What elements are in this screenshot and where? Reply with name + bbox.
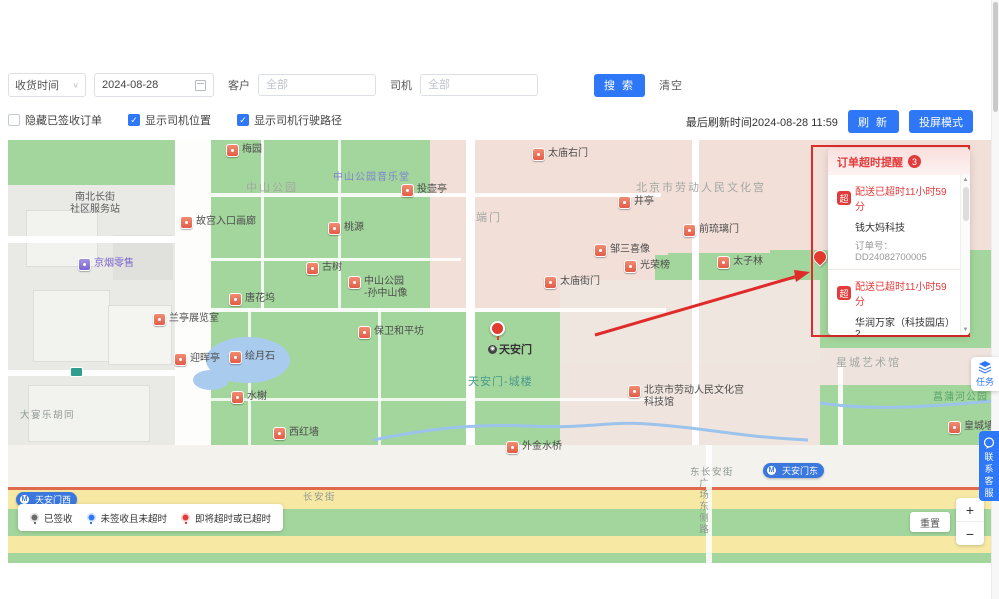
alert-panel-title: 订单超时提醒: [837, 154, 903, 170]
map-label-太子林[interactable]: 太子林: [717, 256, 763, 269]
map-label-绘月石[interactable]: 绘月石: [229, 351, 275, 364]
map-label-中山公园: 中山公园: [246, 182, 298, 194]
map-label-南北长街: 南北长街社区服务站: [70, 192, 120, 216]
map-label-text: 投壶亭: [417, 184, 447, 196]
poi-icon: [306, 262, 319, 275]
map-label-北京市劳动人民文化宫[interactable]: 北京市劳动人民文化宫科技馆: [628, 385, 744, 409]
date-picker[interactable]: 2024-08-28: [94, 73, 214, 97]
overtime-alert-panel: 订单超时提醒 3 超配送已超时11小时59分钱大妈科技订单号：DD2408270…: [828, 148, 970, 335]
map-label-poi: [70, 367, 86, 377]
poi-icon: [717, 256, 730, 269]
poi-icon: [231, 391, 244, 404]
legend-item: 未签收且未超时: [87, 511, 168, 525]
alert-order-no: 订单号：DD24082700005: [855, 238, 952, 263]
map-label-text: 梅园: [242, 144, 262, 156]
poi-icon: [628, 385, 641, 398]
alert-customer: 华润万家（科技园店）2: [855, 314, 952, 335]
hide-signed-label: 隐藏已签收订单: [25, 112, 102, 128]
map-label-text: 长安街: [303, 492, 336, 504]
map-label-text: 天安门东: [782, 465, 818, 477]
map-label-前琉璃门[interactable]: 前琉璃门: [683, 224, 739, 237]
layers-icon: [978, 361, 992, 374]
poi-icon: [78, 258, 91, 271]
chat-icon: [983, 437, 995, 449]
alert-panel-header: 订单超时提醒 3: [828, 148, 970, 175]
poi-icon: [358, 326, 371, 339]
last-refresh-time: 最后刷新时间2024-08-28 11:59: [686, 114, 838, 130]
scroll-thumb[interactable]: [963, 187, 969, 221]
map-label-天安门东[interactable]: 天安门东: [763, 463, 824, 478]
map-label-text: 迎晖亭: [190, 353, 220, 365]
map-label-text: 大宴乐胡同: [20, 410, 75, 422]
alert-item[interactable]: 超配送已超时11小时59分华润万家（科技园店）2订单号：DD2408270000…: [828, 270, 960, 335]
poi-icon: [226, 144, 239, 157]
zoom-control: + −: [956, 498, 984, 545]
map-label-text: 古树: [322, 262, 342, 274]
map-label-保卫和平坊[interactable]: 保卫和平坊: [358, 326, 424, 339]
overtime-badge: 超: [837, 191, 851, 205]
map-label-迎晖亭[interactable]: 迎晖亭: [174, 353, 220, 366]
map-label-端门: 端门: [476, 212, 502, 224]
map-label-外金水桥[interactable]: 外金水桥: [506, 441, 562, 454]
hide-signed-checkbox[interactable]: 隐藏已签收订单: [8, 112, 102, 128]
show-driver-route-checkbox[interactable]: ✓ 显示司机行驶路径: [237, 112, 342, 128]
poi-icon: [229, 351, 242, 364]
poi-icon: [153, 313, 166, 326]
time-type-value: 收货时间: [15, 77, 59, 93]
map-label-菖蒲河公园: 菖蒲河公园: [933, 392, 988, 404]
map-label-京烟零售[interactable]: 京烟零售: [78, 258, 134, 271]
scroll-up-icon[interactable]: ▲: [963, 177, 969, 183]
zoom-out-button[interactable]: −: [956, 522, 984, 545]
red-pin-icon: [810, 247, 830, 267]
map-label-text: 故宫入口画廊: [196, 216, 256, 228]
map-label-长安街: 长安街: [303, 492, 336, 504]
alert-count-badge: 3: [908, 155, 921, 168]
red-pin-icon: [490, 321, 505, 336]
driver-label: 司机: [390, 77, 412, 93]
map-label-唐花坞[interactable]: 唐花坞: [229, 293, 275, 306]
contact-support-button[interactable]: 联系客服: [979, 431, 999, 501]
map-label-text: 西红墙: [289, 427, 319, 439]
map-label-text: 太庙右门: [548, 148, 588, 160]
reset-button[interactable]: 重置: [910, 512, 950, 532]
show-driver-location-label: 显示司机位置: [145, 112, 211, 128]
poi-icon: [273, 427, 286, 440]
map-label-text: 井亭: [634, 196, 654, 208]
poi-icon: [532, 148, 545, 161]
support-label: 联系客服: [983, 452, 996, 500]
map-label-text: 桃源: [344, 222, 364, 234]
show-driver-route-label: 显示司机行驶路径: [254, 112, 342, 128]
legend-item: 已签收: [30, 511, 73, 525]
map-label-大宴乐胡同: 大宴乐胡同: [20, 410, 75, 422]
map-label-text: 南北长街社区服务站: [70, 192, 120, 216]
poi-icon: [618, 196, 631, 209]
legend-label: 即将超时或已超时: [195, 511, 271, 525]
map-label-星城艺术馆: 星城艺术馆: [836, 357, 901, 369]
subway-entrance-icon: [70, 367, 83, 377]
zoom-in-button[interactable]: +: [956, 498, 984, 522]
map-label-中山公园[interactable]: 中山公园-孙中山像: [348, 276, 407, 300]
overtime-badge: 超: [837, 286, 851, 300]
page-scrollbar[interactable]: [991, 0, 999, 599]
map-label-广场东侧路: 广场东侧路: [696, 478, 708, 536]
map-label-故宫入口画廊[interactable]: 故宫入口画廊: [180, 216, 256, 229]
legend-pin-icon: [181, 513, 190, 522]
alert-customer: 钱大妈科技: [855, 219, 952, 234]
customer-input[interactable]: [258, 74, 376, 96]
map-label-井亭[interactable]: 井亭: [618, 196, 654, 209]
poi-icon: [229, 293, 242, 306]
poi-icon: [174, 353, 187, 366]
customer-label: 客户: [228, 77, 250, 93]
option-row: 隐藏已签收订单 ✓ 显示司机位置 ✓ 显示司机行驶路径 最后刷新时间2024-0…: [8, 110, 991, 134]
map-label-text: 太庙街门: [560, 276, 600, 288]
map-label-text: 天安门-城楼: [468, 376, 533, 388]
alert-item[interactable]: 超配送已超时11小时59分钱大妈科技订单号：DD24082700005: [828, 175, 960, 270]
map-label-text: 中山公园-孙中山像: [364, 276, 407, 300]
map-label-桃源[interactable]: 桃源: [328, 222, 364, 235]
map-label-text: 光荣榜: [640, 260, 670, 272]
map-label-text: 北京市劳动人民文化宫科技馆: [644, 385, 744, 409]
map-label-text: 北京市劳动人民文化宫: [636, 182, 766, 194]
map-label-text: 唐花坞: [245, 293, 275, 305]
refresh-button[interactable]: 刷 新: [848, 110, 899, 133]
map-label-天安门-城楼: 天安门-城楼: [468, 376, 533, 388]
map-label-太庙街门[interactable]: 太庙街门: [544, 276, 600, 289]
map-label-text: 端门: [476, 212, 502, 224]
poi-icon: [594, 244, 607, 257]
map-label-text: 外金水桥: [522, 441, 562, 453]
map-label-text: 邹三喜像: [610, 244, 650, 256]
clear-button[interactable]: 清空: [659, 77, 683, 93]
map-legend: 已签收未签收且未超时即将超时或已超时: [18, 504, 283, 531]
map-label-投壶亭[interactable]: 投壶亭: [401, 184, 447, 197]
poi-icon: [180, 216, 193, 229]
map-label-西红墙[interactable]: 西红墙: [273, 427, 319, 440]
legend-label: 未签收且未超时: [101, 511, 168, 525]
calendar-icon: [195, 80, 206, 91]
map-label-太庙右门[interactable]: 太庙右门: [532, 148, 588, 161]
map-label-text: 太子林: [733, 256, 763, 268]
checkbox-icon: ✓: [237, 114, 249, 126]
date-value: 2024-08-28: [102, 79, 158, 91]
task-label: 任务: [976, 375, 994, 388]
poi-icon: [401, 184, 414, 197]
cast-mode-button[interactable]: 投屏模式: [909, 110, 973, 133]
checkbox-icon: [8, 114, 20, 126]
map-label-text: 水榭: [247, 391, 267, 403]
map-label-text: 保卫和平坊: [374, 326, 424, 338]
map-label-中山公园音乐堂: 中山公园音乐堂: [333, 172, 410, 184]
map-label-text: 菖蒲河公园: [933, 392, 988, 404]
chevron-down-icon: ∨: [72, 81, 79, 90]
map-label-text: 中山公园: [246, 182, 298, 194]
legend-pin-icon: [87, 513, 96, 522]
poi-icon: [948, 421, 961, 434]
map-label-光荣榜[interactable]: 光荣榜: [624, 260, 670, 273]
poi-icon: [544, 276, 557, 289]
map-label-text: 兰亭展览室: [169, 313, 219, 325]
pin-tail: [497, 336, 499, 340]
checkbox-icon: ✓: [128, 114, 140, 126]
time-type-select[interactable]: 收货时间 ∨: [8, 73, 86, 97]
poi-icon: [624, 260, 637, 273]
panel-scrollbar[interactable]: ▲ ▼: [960, 175, 970, 335]
legend-label: 已签收: [44, 511, 73, 525]
map-label-text: 中山公园音乐堂: [333, 172, 410, 184]
tiananmen-label: 天安门: [499, 341, 532, 357]
map-label-text: 广场东侧路: [696, 478, 708, 536]
show-driver-location-checkbox[interactable]: ✓ 显示司机位置: [128, 112, 211, 128]
poi-icon: [506, 441, 519, 454]
driver-input[interactable]: [420, 74, 538, 96]
map-label-水榭[interactable]: 水榭: [231, 391, 267, 404]
tiananmen-marker[interactable]: ◉天安门: [488, 321, 532, 357]
map-label-梅园[interactable]: 梅园: [226, 144, 262, 157]
search-button[interactable]: 搜 索: [594, 74, 645, 97]
map-label-古树[interactable]: 古树: [306, 262, 342, 275]
map-label-邹三喜像[interactable]: 邹三喜像: [594, 244, 650, 257]
map-label-北京市劳动人民文化宫: 北京市劳动人民文化宫: [636, 182, 766, 194]
map-label-text: 京烟零售: [94, 258, 134, 270]
legend-pin-icon: [30, 513, 39, 522]
poi-icon: [683, 224, 696, 237]
filter-toolbar: 收货时间 ∨ 2024-08-28 客户 司机 搜 索 清空: [8, 72, 683, 98]
scrollbar-thumb[interactable]: [993, 2, 998, 112]
driver-monitor-page: 收货时间 ∨ 2024-08-28 客户 司机 搜 索 清空 隐藏已签收订单 ✓…: [0, 0, 999, 599]
poi-icon: [348, 276, 361, 289]
map-label-text: 星城艺术馆: [836, 357, 901, 369]
attraction-icon: ◉: [488, 345, 497, 354]
task-float-button[interactable]: 任务: [971, 357, 999, 391]
poi-icon: [328, 222, 341, 235]
map-label-text: 前琉璃门: [699, 224, 739, 236]
alert-items-list: 超配送已超时11小时59分钱大妈科技订单号：DD24082700005超配送已超…: [828, 175, 960, 335]
alert-status: 配送已超时11小时59分: [855, 278, 952, 308]
map-label-text: 绘月石: [245, 351, 275, 363]
legend-item: 即将超时或已超时: [181, 511, 271, 525]
map-label-兰亭展览室[interactable]: 兰亭展览室: [153, 313, 219, 326]
scroll-down-icon[interactable]: ▼: [963, 327, 969, 333]
alert-status: 配送已超时11小时59分: [855, 183, 952, 213]
